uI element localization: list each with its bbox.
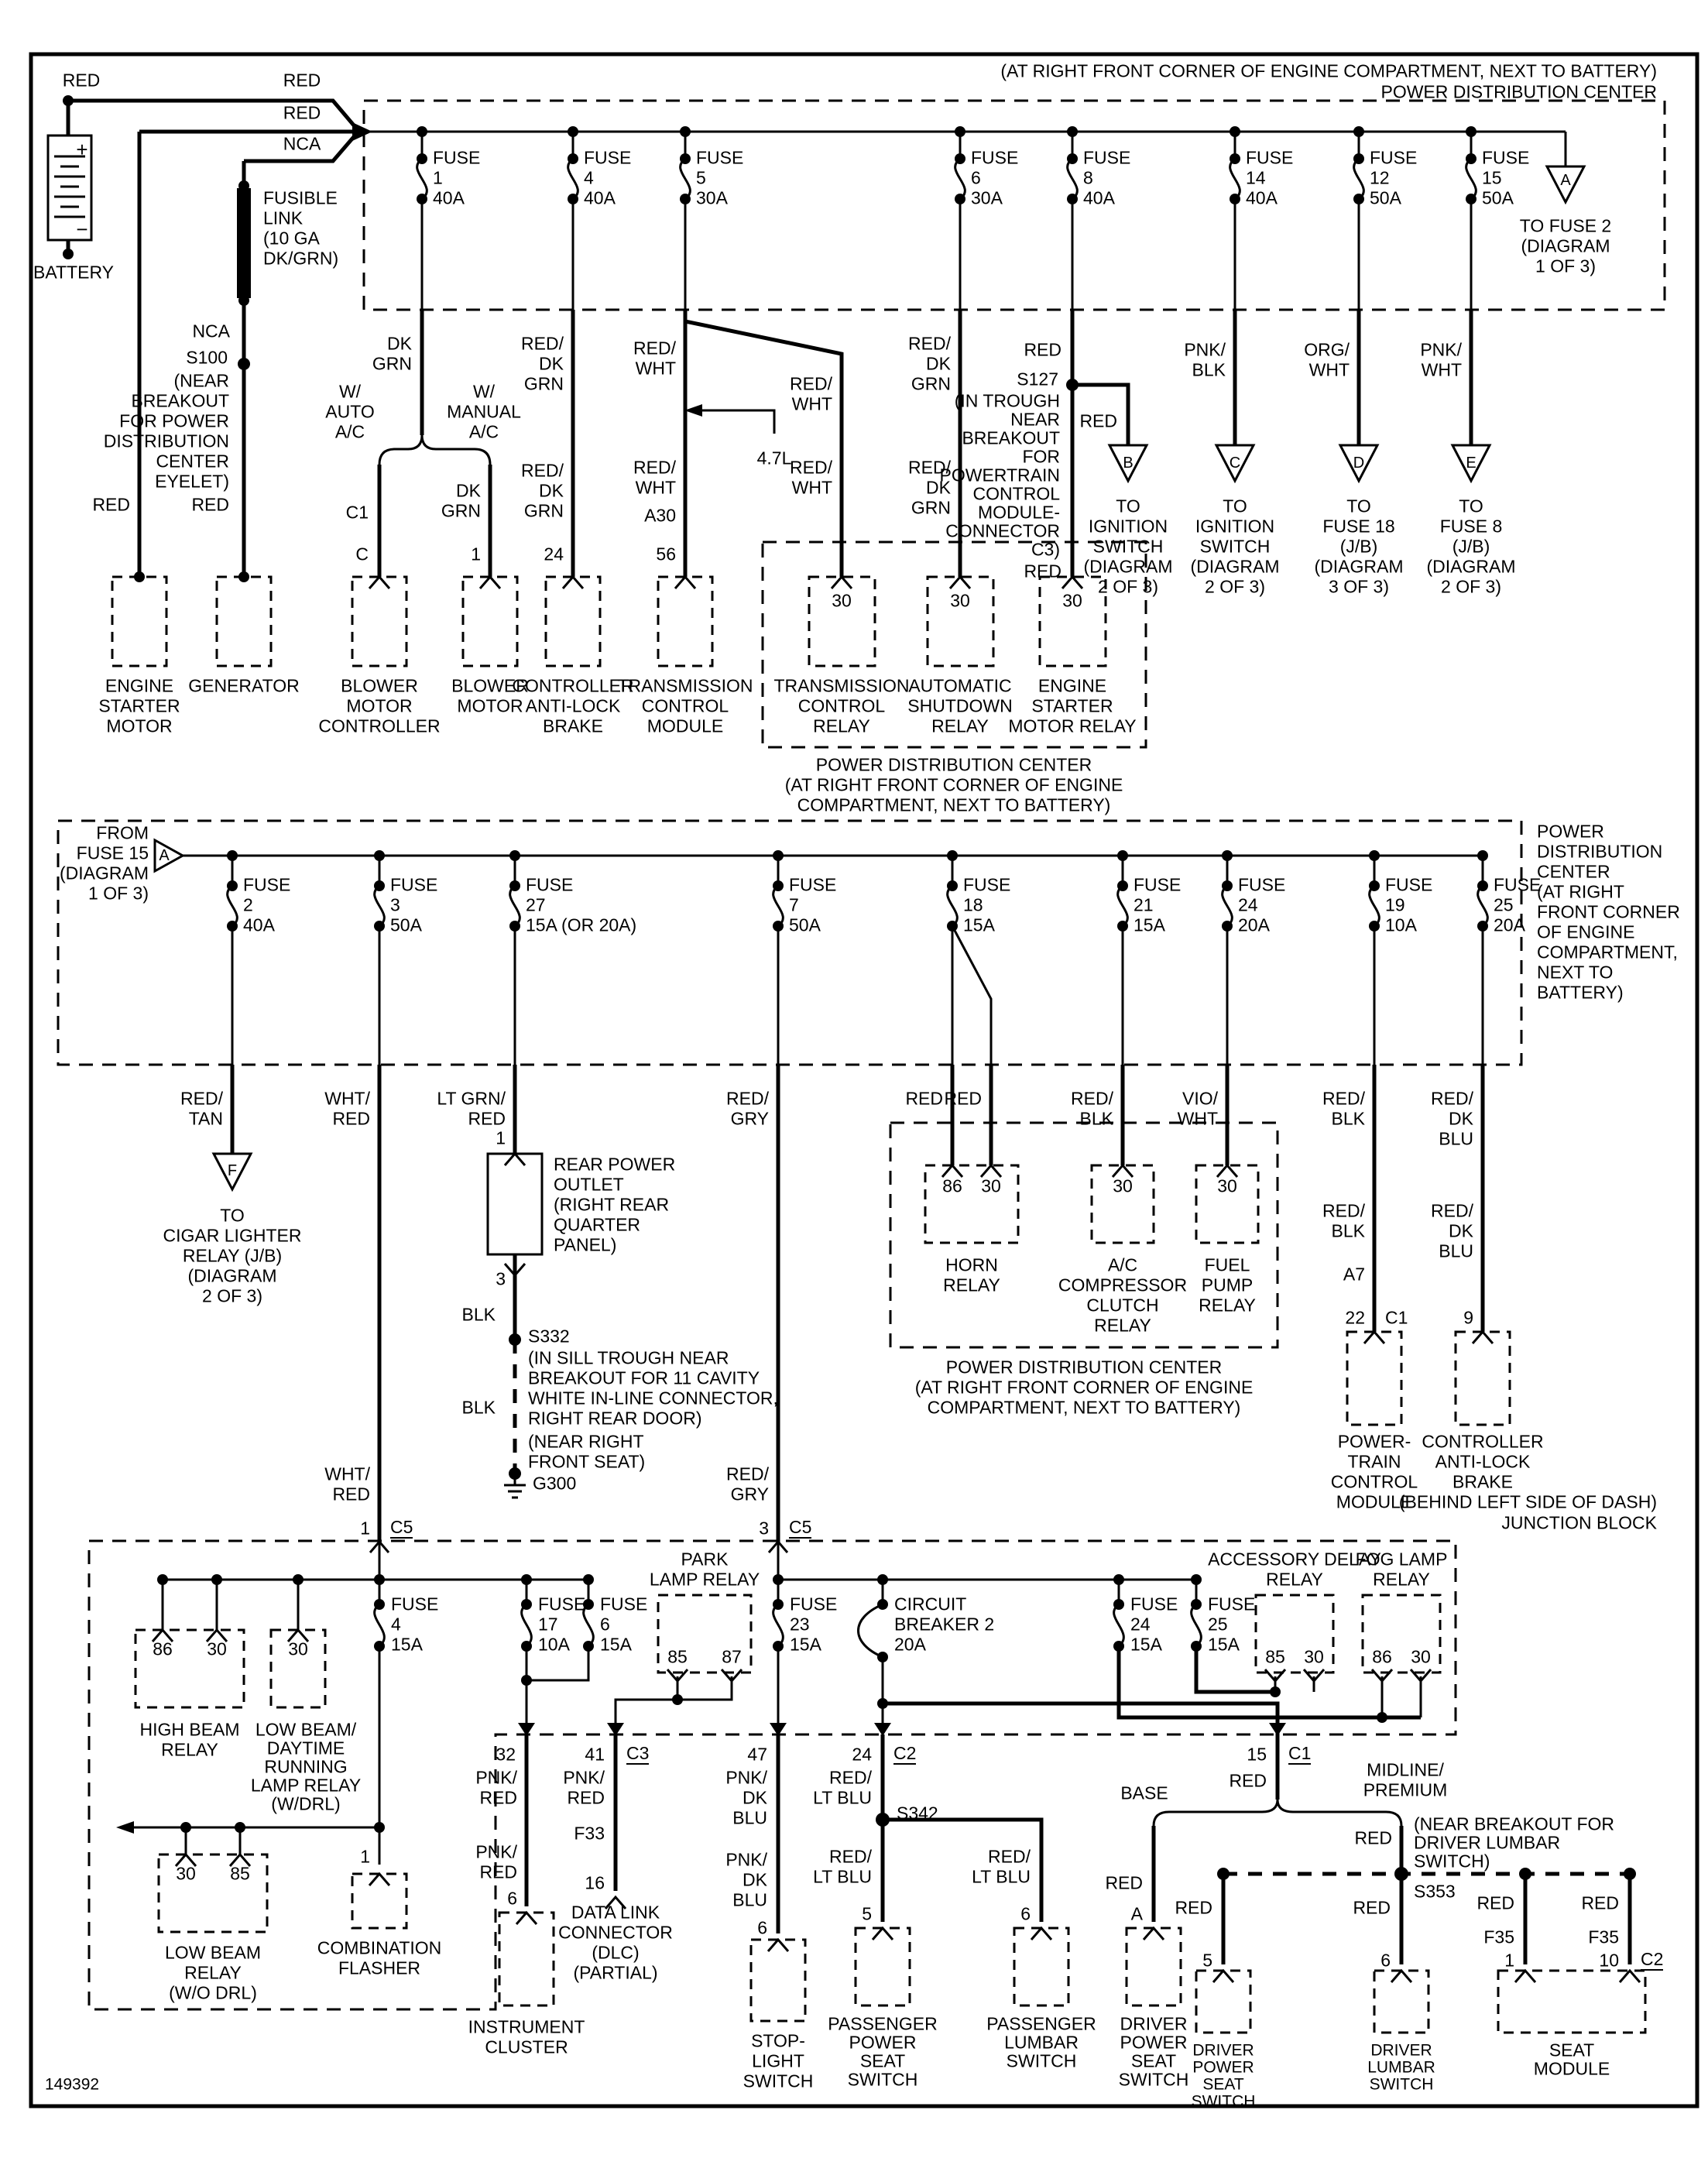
fuse23-jb: 23 [790,1616,810,1634]
wire-redgry: RED/ [726,1090,769,1108]
conn-c5: C5 [390,1518,413,1539]
component-fuel-pump-relay: PUMP [1202,1277,1253,1295]
hdr-jb-loc: (BEHIND LEFT SIDE OF DASH) [1399,1494,1657,1511]
battery-plates [54,156,85,217]
fuse24-jb: 24 [1130,1616,1151,1634]
conn-c3: C3 [626,1745,649,1765]
wire-red: RED [1476,1895,1514,1913]
pin-30: 30 [207,1641,227,1659]
connector-e-dest: (J/B) [1452,538,1490,556]
wire-redwht: RED/ [633,340,676,358]
wire-redwht: WHT [792,479,832,497]
fuse-symbols [228,159,1488,1657]
pdc2-caption: CENTER [1537,863,1610,881]
component-rear-power-outlet: REAR POWER [554,1156,675,1174]
fuse24-jb: 15A [1130,1636,1162,1654]
component-park-lamp-relay: PARK [681,1551,729,1569]
pin-30: 30 [1304,1649,1324,1666]
s127-note: BREAKOUT [962,430,1060,448]
fuse4: 4 [584,170,594,187]
trim-level-brace [1154,1800,1401,1826]
s127-note: C3) [1031,541,1060,559]
wire-pnkred: RED [479,1789,517,1807]
connector-d-dest: FUSE 18 [1322,518,1394,536]
s353-note: SWITCH) [1414,1853,1490,1871]
fuse5: 30A [696,190,728,208]
fuse14: FUSE [1246,149,1293,167]
wire-redblk: BLK [1332,1223,1365,1240]
pin-1: 1 [360,1848,370,1866]
fuse24: 24 [1238,897,1258,914]
pin-3: 3 [496,1271,506,1288]
wire-red: RED [283,105,321,122]
wire-reddkgrn: DK [539,482,564,500]
wire-reddkgrn: DK [539,355,564,373]
wire-whtred: RED [332,1486,370,1504]
fusible-link-label: (10 GA [263,230,320,248]
fuse27: FUSE [526,877,573,894]
hdr-pdc1-loc: (AT RIGHT FRONT CORNER OF ENGINE COMPART… [1000,63,1657,81]
connector-f: F [228,1163,237,1179]
connector-c-dest: TO [1223,498,1247,516]
conn-c2: C2 [1641,1951,1663,1971]
pdc2-caption: COMPARTMENT, [1537,944,1678,962]
component-pass-power-seat-switch: POWER [849,2034,917,2052]
component-engine-starter-motor: STARTER [98,698,180,715]
s100-note: BREAKOUT [131,393,229,410]
wire-reddkblu: RED/ [1431,1090,1473,1108]
circuit-breaker-2: 20A [894,1636,926,1654]
wire-viowht: WHT [1178,1110,1218,1128]
pdc2-caption: POWER [1537,823,1604,841]
pin-86: 86 [942,1178,962,1196]
fuse3: 3 [390,897,400,914]
wire-reddkgrn: GRN [911,499,951,517]
wire-redwht: RED/ [633,459,676,477]
wire-viowht: VIO/ [1182,1090,1218,1108]
component-driver-power-seat-switch: SWITCH [1119,2071,1189,2089]
component-esmr: ENGINE [1038,678,1106,695]
pin-56: 56 [656,546,676,564]
wire-pnkred: RED [567,1789,605,1807]
option-auto-ac: AUTO [325,403,374,421]
fuse25: FUSE [1494,877,1541,894]
connector-a: A [1560,173,1570,188]
component-high-beam-relay: RELAY [161,1741,218,1759]
s332-note: BREAKOUT FOR 11 CAVITY [528,1370,760,1388]
wire-red: RED [1175,1899,1212,1917]
wire-red: RED [1105,1875,1143,1892]
s127-note: POWERTRAIN [940,467,1060,485]
wire-orgwht: WHT [1309,362,1350,379]
fuse12: 50A [1370,190,1401,208]
component-lb-drl-relay: LOW BEAM/ [256,1721,356,1739]
wire-redblk: BLK [1080,1110,1113,1128]
wire-redwht: WHT [792,396,832,413]
fuse4-jb: FUSE [391,1596,438,1614]
pin-30: 30 [1411,1649,1431,1666]
wire-reddkgrn: GRN [524,376,564,393]
fuse25-jb: FUSE [1208,1596,1255,1614]
wire-pnkblk: BLK [1192,362,1226,379]
s332-note: RIGHT REAR DOOR) [528,1410,701,1428]
wire-reddkgrn: RED/ [521,462,564,480]
wire-redltblu: LT BLU [813,1789,872,1807]
pin-c: C [355,546,369,564]
s127-note: NEAR [1010,411,1060,429]
connector-b-dest: TO [1116,498,1140,516]
wire-blk: BLK [462,1399,496,1417]
pin-5: 5 [1202,1952,1212,1970]
fuse27: 27 [526,897,546,914]
pin-47: 47 [747,1746,767,1764]
s332-note: (IN SILL TROUGH NEAR [528,1350,729,1367]
fuse24-jb: FUSE [1130,1596,1178,1614]
component-tcr: RELAY [813,718,870,736]
fuse8: FUSE [1083,149,1130,167]
component-blower-motor-controller: MOTOR [346,698,412,715]
s353-note: (NEAR BREAKOUT FOR [1414,1816,1614,1834]
component-pcm: CONTROL [1331,1474,1418,1491]
connector-f-dest: CIGAR LIGHTER [163,1227,302,1245]
fuse1: 1 [433,170,443,187]
pdc-caption: COMPARTMENT, NEXT TO BATTERY) [797,797,1111,815]
fuse19: 19 [1385,897,1405,914]
pdc-caption: (AT RIGHT FRONT CORNER OF ENGINE [785,777,1123,794]
component-dlc: (PARTIAL) [573,1964,657,1982]
fuse25-jb: 25 [1208,1616,1228,1634]
component-low-beam-relay: (W/O DRL) [169,1985,257,2002]
wire-pnkred: RED [479,1864,517,1882]
pdc4-caption: COMPARTMENT, NEXT TO BATTERY) [928,1399,1241,1417]
wire-pnkdkblu: BLU [732,1810,767,1827]
fuse18: 18 [963,897,983,914]
connector-f-dest: 2 OF 3) [202,1288,262,1306]
pin-16: 16 [585,1875,605,1892]
component-pass-power-seat-switch: PASSENGER [828,2016,937,2033]
conn-c1: C1 [1288,1745,1311,1765]
s353-note: DRIVER LUMBAR [1414,1834,1560,1852]
connector-a2-src: (DIAGRAM [60,865,149,883]
fusible-link-label: LINK [263,210,303,228]
component-tcr: CONTROL [798,698,885,715]
component-park-lamp-relay: LAMP RELAY [650,1571,760,1589]
pin-a30: A30 [644,507,676,525]
splice-s100: S100 [186,349,228,367]
component-driver-lumbar-switch: LUMBAR [1367,2060,1435,2076]
component-cab2: CONTROLLER [1422,1433,1543,1451]
circuit-f35: F35 [1588,1929,1619,1947]
connector-c: C [1230,455,1240,471]
connector-d-dest: TO [1346,498,1371,516]
pin-6: 6 [507,1890,517,1908]
component-driver-lumbar-switch: DRIVER [1370,2043,1432,2059]
wire-blk: BLK [462,1306,496,1324]
fuse4: FUSE [584,149,631,167]
fuse6: 6 [971,170,981,187]
fuse14: 14 [1246,170,1266,187]
s127-note: CONTROL [973,485,1060,503]
wire-reddkblu: RED/ [1431,1203,1473,1220]
pin-30: 30 [950,592,970,610]
fuse17-jb: 10A [538,1636,570,1654]
s127-note: CONNECTOR [945,523,1060,540]
pin-6: 6 [1380,1952,1391,1970]
circuit-f33: F33 [574,1825,605,1843]
wire-redwht: WHT [636,479,676,497]
option-auto-ac: A/C [335,424,365,441]
component-ac-clutch-relay: CLUTCH [1086,1297,1158,1315]
splice-s353: S353 [1414,1883,1456,1901]
component-fuel-pump-relay: FUEL [1205,1257,1250,1275]
fuse21: FUSE [1134,877,1181,894]
wire-nca: NCA [283,136,321,153]
component-combination-flasher: COMBINATION [317,1940,442,1957]
connector-c-dest: SWITCH [1200,538,1271,556]
component-seat-module: MODULE [1534,2060,1610,2078]
fuse24: 20A [1238,917,1270,935]
component-high-beam-relay: HIGH BEAM [139,1721,239,1739]
wire-pnkdkblu: DK [743,1872,767,1889]
component-lb-drl-relay: RUNNING [264,1758,347,1776]
fuse17-jb: FUSE [538,1596,585,1614]
connector-d: D [1353,455,1364,471]
wire-redtan: RED/ [180,1090,223,1108]
component-tcm: TRANSMISSION [617,678,753,695]
pin-1: 1 [471,546,481,564]
component-tcr: TRANSMISSION [773,678,909,695]
wire-pnkred: PNK/ [563,1769,605,1787]
wire-reddkblu: BLU [1439,1243,1473,1261]
connector-f-dest: TO [220,1207,245,1225]
wire-pnkblk: PNK/ [1184,341,1226,359]
wire-nca: NCA [192,323,230,341]
component-low-beam-relay: RELAY [184,1964,242,1982]
option-auto-ac: W/ [339,383,361,401]
wire-redblk: RED/ [1322,1090,1365,1108]
fuse4-jb: 15A [391,1636,423,1654]
connector-e-dest: (DIAGRAM [1427,558,1516,576]
pin-1: 1 [496,1130,506,1148]
fuse12: FUSE [1370,149,1417,167]
pdc2-outline [58,821,1521,1065]
wire-redblk: RED/ [1322,1203,1365,1220]
fuse6-jb: 15A [600,1636,632,1654]
component-driver-power-seat-switch-2: DRIVER [1192,2043,1254,2059]
component-driver-power-seat-switch-2: POWER [1192,2060,1254,2076]
fusible-link-label: DK/GRN) [263,250,338,268]
connector-a2-src: 1 OF 3) [88,885,149,903]
wire-redblk: RED/ [1071,1090,1113,1108]
wire-redgry: GRY [731,1486,769,1504]
pin-85: 85 [667,1649,688,1666]
component-cab2: BRAKE [1452,1474,1513,1491]
connector-a2-src: FROM [96,825,149,842]
component-ac-clutch-relay: A/C [1108,1257,1137,1275]
pdc2-caption: FRONT CORNER [1537,904,1680,921]
fuse7: FUSE [789,877,836,894]
component-rear-power-outlet: PANEL) [554,1237,616,1254]
splice-s342: S342 [897,1805,938,1823]
wire-whtred: WHT/ [324,1090,370,1108]
pin-5: 5 [862,1906,872,1923]
pdc2-caption: BATTERY) [1537,984,1624,1002]
component-asr: RELAY [931,718,989,736]
component-instrument-cluster: INSTRUMENT [468,2019,585,2036]
pin-85: 85 [230,1865,250,1883]
rear-power-outlet-box [488,1154,542,1254]
pdc2-caption: NEXT TO [1537,964,1613,982]
connector-d-dest: 3 OF 3) [1329,578,1389,596]
wire-redwht: RED/ [790,376,832,393]
pin-9: 9 [1463,1309,1473,1327]
trim-midline: MIDLINE/ [1367,1762,1444,1779]
fuse18: 15A [963,917,995,935]
component-horn-relay: RELAY [943,1277,1000,1295]
connector-e-dest: TO [1459,498,1483,516]
component-blower-motor: MOTOR [457,698,523,715]
fuse14: 40A [1246,190,1278,208]
fuse12: 12 [1370,170,1390,187]
fuse5: 5 [696,170,706,187]
connector-a-dest: (DIAGRAM [1521,238,1610,256]
s127-note: (IN TROUGH [955,393,1060,410]
fuse25-jb: 15A [1208,1636,1240,1654]
s100-note: EYELET) [155,473,229,491]
fuse4: 40A [584,190,616,208]
component-pcm: POWER- [1338,1433,1411,1451]
trim-midline: PREMIUM [1363,1782,1448,1800]
component-rear-power-outlet: (RIGHT REAR [554,1196,669,1214]
pin-86: 86 [1372,1649,1392,1666]
circuit-breaker-2: BREAKER 2 [894,1616,994,1634]
component-stop-light-switch: SWITCH [743,2073,814,2091]
connector-b-dest: (DIAGRAM [1084,558,1173,576]
wire-red: RED [191,496,229,514]
connector-e-dest: 2 OF 3) [1441,578,1501,596]
wire-ltgrnred: RED [468,1110,506,1128]
fuse2: 40A [243,917,275,935]
splice-s353-dot [1394,1867,1408,1881]
component-blower-motor-controller: BLOWER [341,678,418,695]
fuse24: FUSE [1238,877,1285,894]
g300-note: FRONT SEAT) [528,1453,645,1471]
connector-b-dest: IGNITION [1089,518,1168,536]
wire-whtred: RED [332,1110,370,1128]
component-fuel-pump-relay: RELAY [1199,1297,1256,1315]
s127-note: FOR [1022,448,1060,466]
wire-redwht: RED/ [790,459,832,477]
wire-red: RED [1353,1899,1391,1917]
connector-f-dest: RELAY (J/B) [183,1247,282,1265]
component-horn-relay: HORN [945,1257,998,1275]
s332-note: WHITE IN-LINE CONNECTOR, [528,1390,778,1408]
diagram-id: 149392 [45,2077,99,2093]
fuse1: FUSE [433,149,480,167]
pin-30: 30 [176,1865,196,1883]
wire-dkgrn: DK [456,482,481,500]
engine-note: 4.7L [757,450,792,468]
component-driver-power-seat-switch: SEAT [1131,2053,1176,2071]
fuse15: 15 [1482,170,1502,187]
connector-b-dest: SWITCH [1093,538,1164,556]
s100-note: (NEAR [173,372,229,390]
pin-32: 32 [496,1746,516,1764]
component-dlc: DATA LINK [571,1904,660,1922]
wire-pnkwht: WHT [1422,362,1462,379]
pin-15: 15 [1247,1746,1267,1764]
connector-e-dest: FUSE 8 [1440,518,1503,536]
component-lb-drl-relay: LAMP RELAY [251,1777,361,1795]
wire-red: RED [92,496,130,514]
pdc2-caption: OF ENGINE [1537,924,1635,942]
fusible-link-label: FUSIBLE [263,190,338,208]
wire-reddkgrn: RED/ [521,335,564,353]
component-fog-lamp-relay: RELAY [1373,1571,1430,1589]
connector-c-dest: (DIAGRAM [1191,558,1280,576]
fuse23-jb: FUSE [790,1596,837,1614]
pin-41: 41 [585,1746,605,1764]
hdr-pdc1-name: POWER DISTRIBUTION CENTER [1380,84,1657,101]
pin-30: 30 [1217,1178,1237,1196]
component-pass-lumbar-switch: SWITCH [1007,2053,1077,2071]
wire-whtred: WHT/ [324,1466,370,1484]
component-fog-lamp-relay: FOG LAMP [1356,1551,1448,1569]
option-manual-ac: MANUAL [447,403,521,421]
wire-red: RED [944,1090,982,1108]
pdc4-caption: (AT RIGHT FRONT CORNER OF ENGINE [915,1379,1254,1397]
component-stop-light-switch: STOP- [751,2033,805,2050]
wire-redltblu: LT BLU [972,1868,1031,1886]
fusible-link-symbol [237,188,251,298]
component-instrument-cluster: CLUSTER [485,2039,568,2057]
pin-a7: A7 [1343,1266,1365,1284]
conn-c5: C5 [789,1518,811,1539]
component-driver-lumbar-switch: SWITCH [1370,2077,1434,2093]
fuse6: FUSE [971,149,1018,167]
fuse15: 50A [1482,190,1514,208]
connector-d-dest: (DIAGRAM [1315,558,1404,576]
component-asr: AUTOMATIC [908,678,1011,695]
splice-s332: S332 [528,1328,570,1346]
component-driver-power-seat-switch: POWER [1120,2034,1188,2052]
component-cab2: ANTI-LOCK [1435,1453,1531,1471]
wire-redwht: WHT [636,360,676,378]
component-generator: GENERATOR [188,678,300,695]
pin-a: A [1131,1906,1143,1923]
component-pass-power-seat-switch: SEAT [860,2053,905,2071]
fuse27: 15A (OR 20A) [526,917,636,935]
connector-f-dest: (DIAGRAM [188,1268,277,1285]
component-low-beam-relay: LOW BEAM [165,1944,261,1962]
pin-86: 86 [153,1641,173,1659]
component-tcm: CONTROL [642,698,729,715]
connector-c-dest: 2 OF 3) [1205,578,1265,596]
component-stop-light-switch: LIGHT [752,2053,804,2071]
fuse17-jb: 17 [538,1616,558,1634]
wire-reddkgrn: GRN [524,503,564,520]
component-dlc: (DLC) [592,1944,639,1962]
pin-24: 24 [544,546,564,564]
wire-redblk: BLK [1332,1110,1365,1128]
component-ac-clutch-relay: COMPRESSOR [1058,1277,1187,1295]
battery-minus: − [76,219,87,239]
component-dlc: CONNECTOR [558,1924,673,1942]
connector-d-dest: (J/B) [1340,538,1378,556]
connector-b: B [1123,455,1133,471]
fuse15: FUSE [1482,149,1529,167]
fuse6-jb: 6 [600,1616,610,1634]
